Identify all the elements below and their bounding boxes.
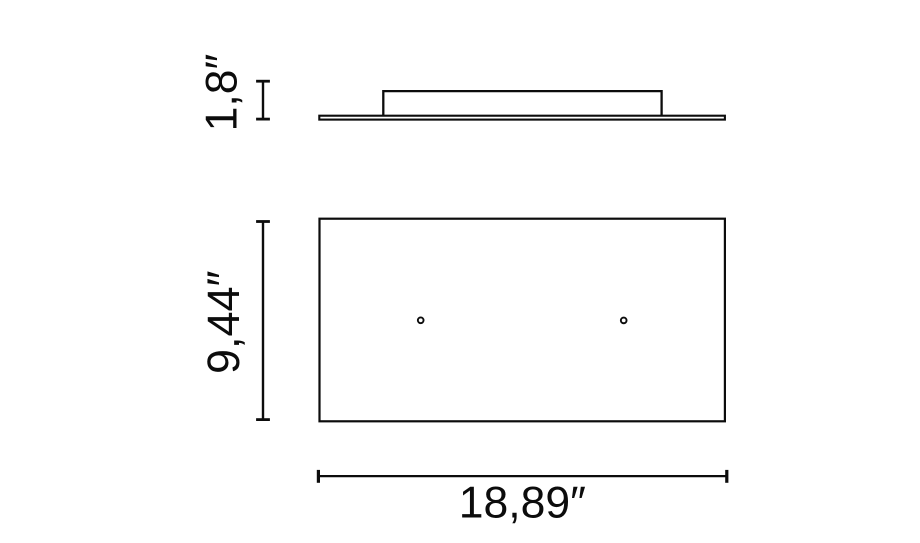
svg-text:1,8″: 1,8″ bbox=[198, 54, 247, 132]
svg-text:18,89″: 18,89″ bbox=[459, 479, 586, 528]
svg-text:9,44″: 9,44″ bbox=[198, 270, 249, 374]
